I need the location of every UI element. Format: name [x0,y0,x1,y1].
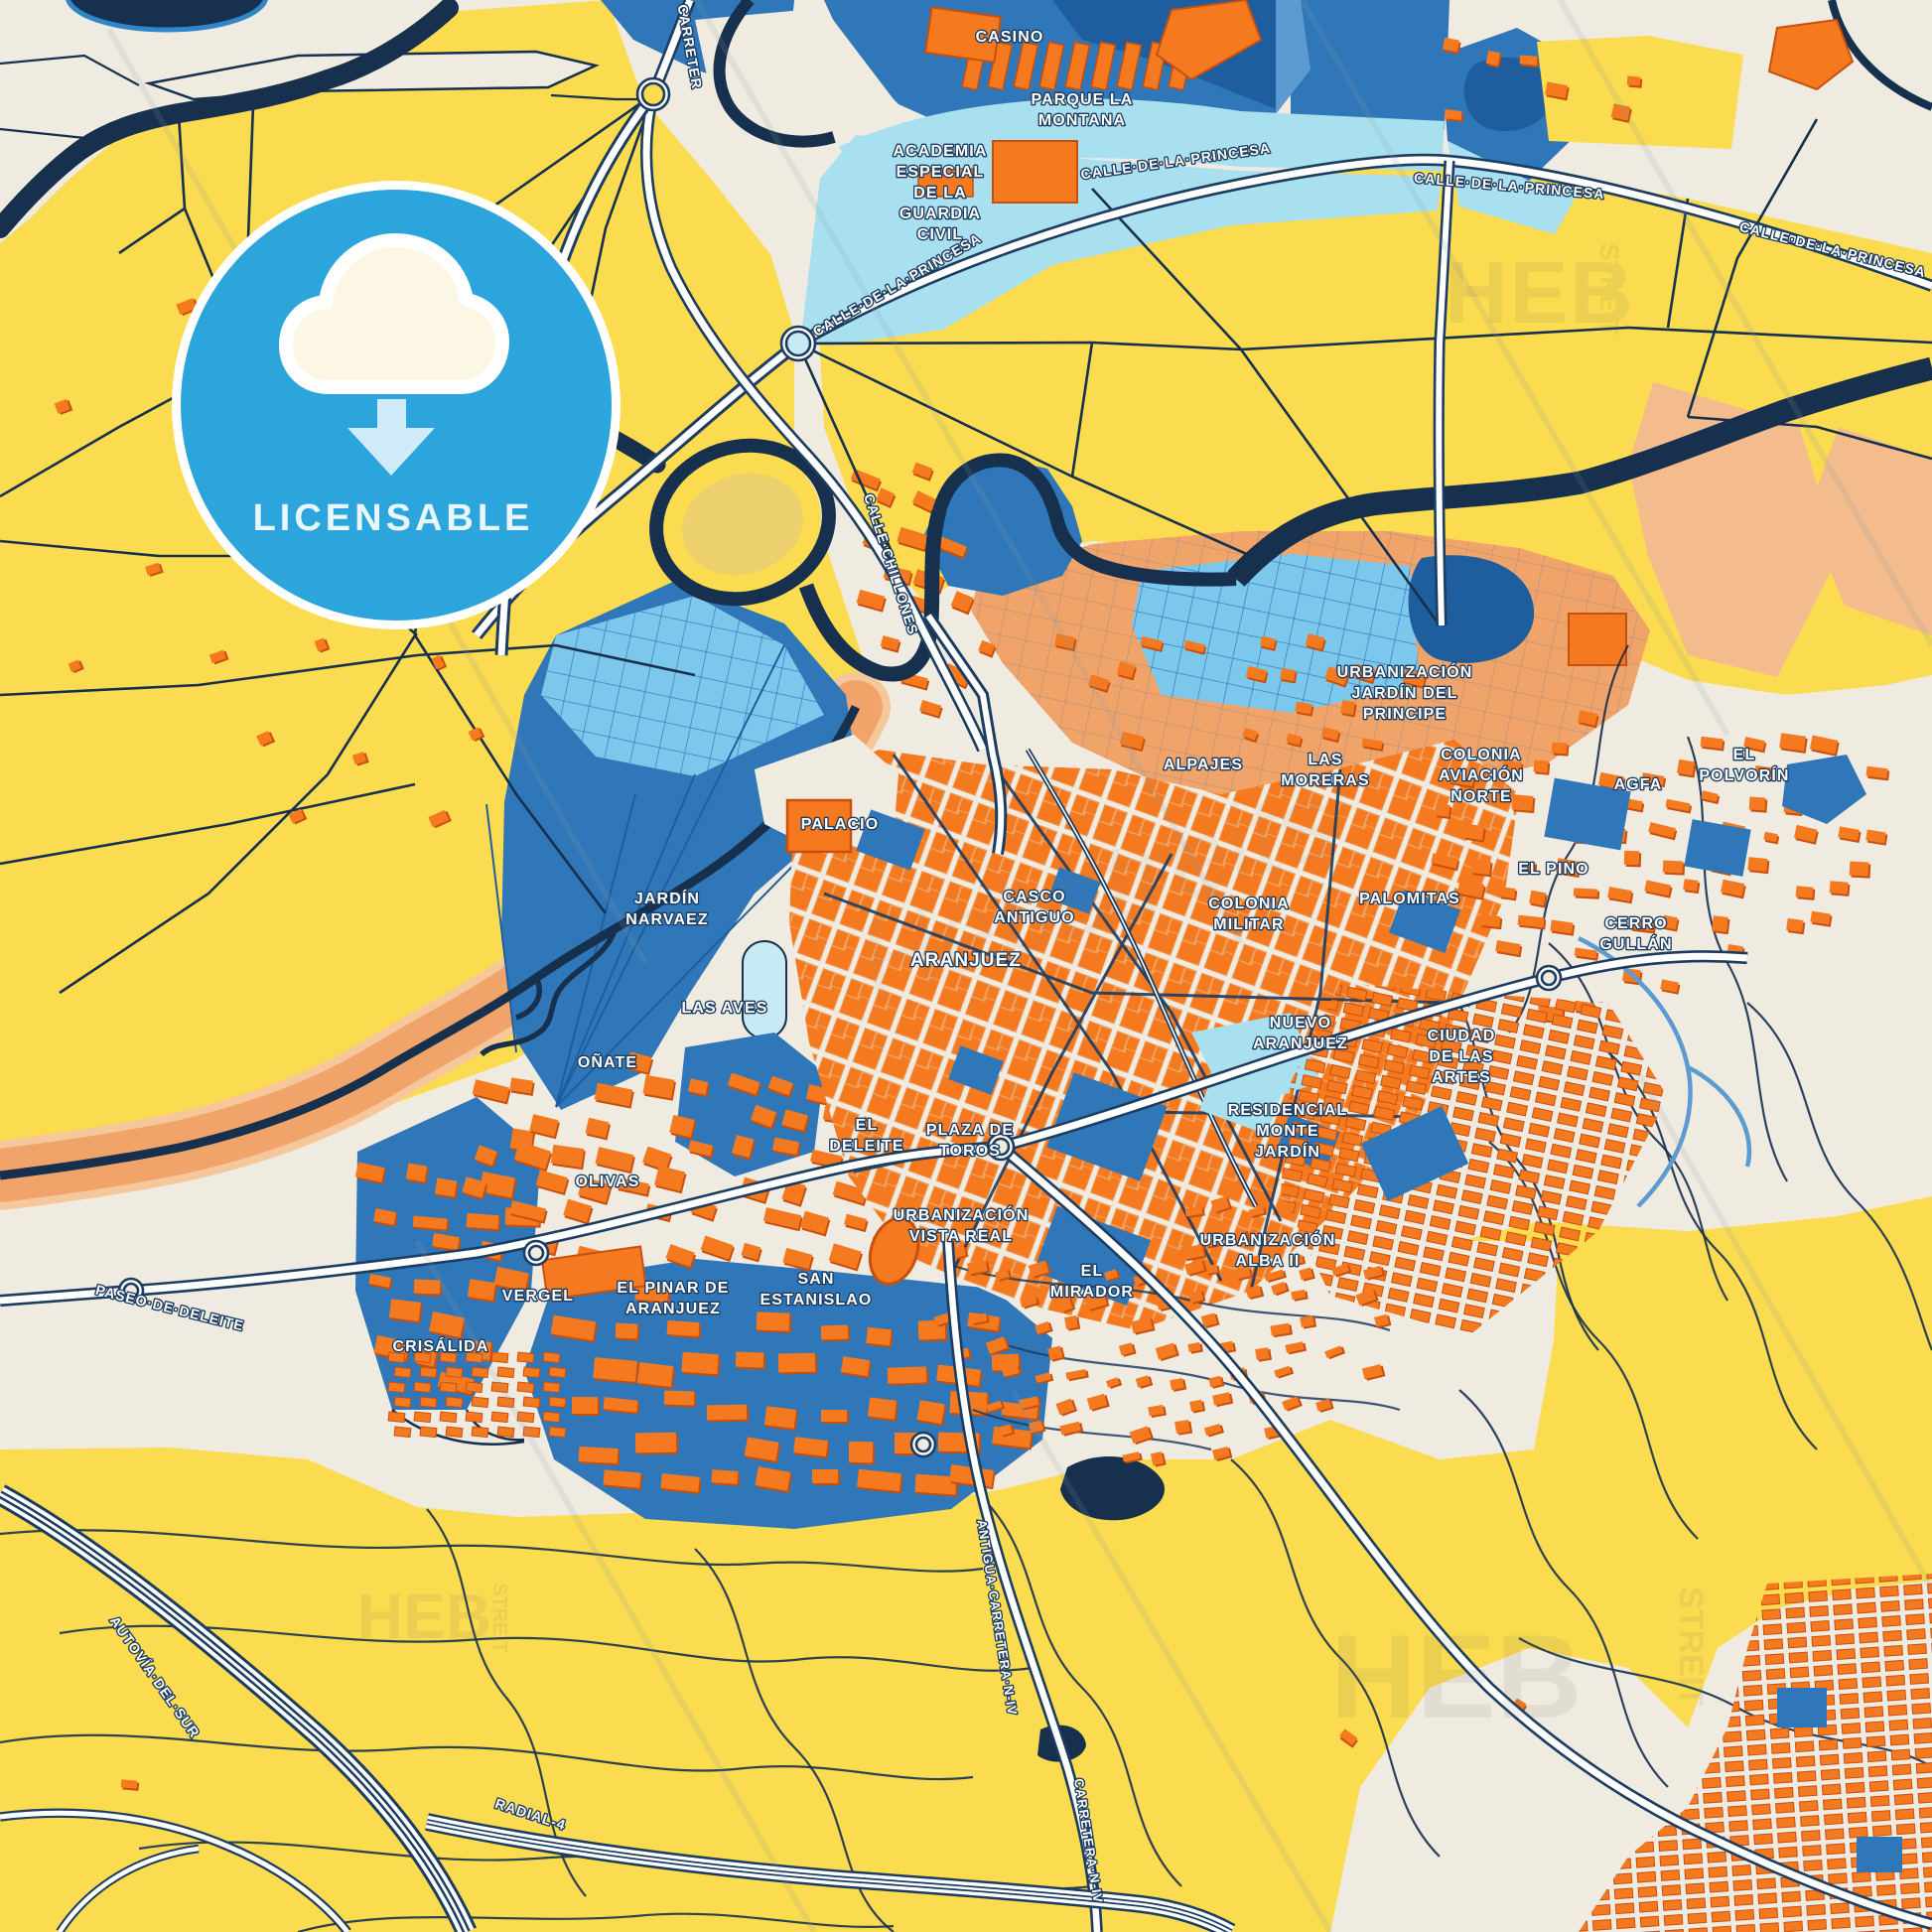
svg-text:HEB: HEB [357,1581,491,1652]
svg-text:AVIACIÓN: AVIACIÓN [1439,765,1524,784]
svg-text:SAN: SAN [797,1271,834,1288]
svg-text:GUARDIA: GUARDIA [899,206,981,222]
svg-text:VISTA REAL: VISTA REAL [909,1228,1013,1245]
svg-text:LAS: LAS [1308,752,1342,768]
svg-text:HEB: HEB [1330,1610,1582,1743]
svg-text:AGFA: AGFA [1614,776,1663,793]
svg-text:ALBA II: ALBA II [1236,1253,1301,1270]
svg-text:MORERAS: MORERAS [1281,772,1369,789]
svg-text:ALPAJES: ALPAJES [1164,757,1243,773]
svg-text:MONTE: MONTE [1256,1123,1318,1140]
svg-text:STREIT: STREIT [1594,243,1624,336]
svg-text:COLONIA: COLONIA [1441,747,1521,763]
svg-text:MIRADOR: MIRADOR [1050,1284,1134,1301]
svg-text:DE LA: DE LA [913,185,967,202]
svg-text:MONTANA: MONTANA [1038,112,1126,129]
svg-text:CIUDAD: CIUDAD [1428,1028,1496,1044]
svg-text:OLIVAS: OLIVAS [576,1173,640,1190]
svg-text:NUEVO: NUEVO [1270,1015,1331,1032]
svg-text:STREIT: STREIT [1672,1587,1710,1707]
svg-text:PLAZA DE: PLAZA DE [926,1122,1014,1139]
svg-text:CRISÁLIDA: CRISÁLIDA [392,1336,488,1355]
svg-text:COLONIA: COLONIA [1208,896,1289,912]
svg-text:ARANJUEZ: ARANJUEZ [1253,1035,1348,1052]
svg-text:OÑATE: OÑATE [578,1051,637,1071]
svg-text:PALOMITAS: PALOMITAS [1359,891,1460,907]
svg-text:ANTIGUO: ANTIGUO [994,909,1074,926]
svg-text:STREIT: STREIT [488,1583,510,1653]
svg-text:VERGEL: VERGEL [502,1288,574,1305]
svg-text:CERRO: CERRO [1604,915,1667,932]
svg-text:MILITAR: MILITAR [1213,916,1284,933]
svg-text:ARANJUEZ: ARANJUEZ [910,950,1022,971]
svg-text:JARDÍN: JARDÍN [634,889,700,907]
svg-text:URBANIZACIÓN: URBANIZACIÓN [894,1205,1030,1224]
svg-text:URBANIZACIÓN: URBANIZACIÓN [1337,662,1473,681]
svg-text:PALACIO: PALACIO [801,816,880,833]
svg-text:JARDÍN DEL: JARDÍN DEL [1351,683,1457,702]
svg-text:CASINO: CASINO [976,29,1044,46]
svg-text:RESIDENCIAL: RESIDENCIAL [1228,1102,1348,1119]
svg-text:NARVAEZ: NARVAEZ [625,911,709,928]
svg-text:DELEITE: DELEITE [829,1138,903,1155]
svg-text:TOROS: TOROS [939,1143,1001,1160]
svg-text:PARQUE LA: PARQUE LA [1032,91,1134,108]
svg-text:EL: EL [1081,1263,1104,1280]
svg-text:ARTES: ARTES [1432,1069,1491,1086]
svg-text:NORTE: NORTE [1450,788,1512,805]
svg-text:ESPECIAL: ESPECIAL [897,164,985,181]
svg-text:POLVORÍN: POLVORÍN [1699,765,1789,784]
svg-text:ESTANISLAO: ESTANISLAO [760,1292,873,1309]
svg-text:URBANIZACIÓN: URBANIZACIÓN [1200,1230,1336,1249]
svg-text:LAS AVES: LAS AVES [681,1000,767,1017]
svg-text:LICENSABLE: LICENSABLE [253,497,534,539]
svg-text:JARDÍN: JARDÍN [1255,1142,1320,1161]
svg-text:PRINCIPE: PRINCIPE [1363,706,1447,723]
svg-text:DE LAS: DE LAS [1429,1048,1493,1065]
svg-text:EL: EL [856,1117,879,1134]
svg-text:ACADEMIA: ACADEMIA [893,143,987,160]
svg-text:EL PINO: EL PINO [1518,861,1588,878]
svg-text:EL: EL [1733,747,1756,763]
svg-text:ARANJUEZ: ARANJUEZ [625,1301,721,1317]
svg-text:EL PINAR DE: EL PINAR DE [617,1280,729,1297]
svg-text:GULLÁN: GULLÁN [1599,934,1672,953]
svg-text:CASCO: CASCO [1003,889,1065,905]
